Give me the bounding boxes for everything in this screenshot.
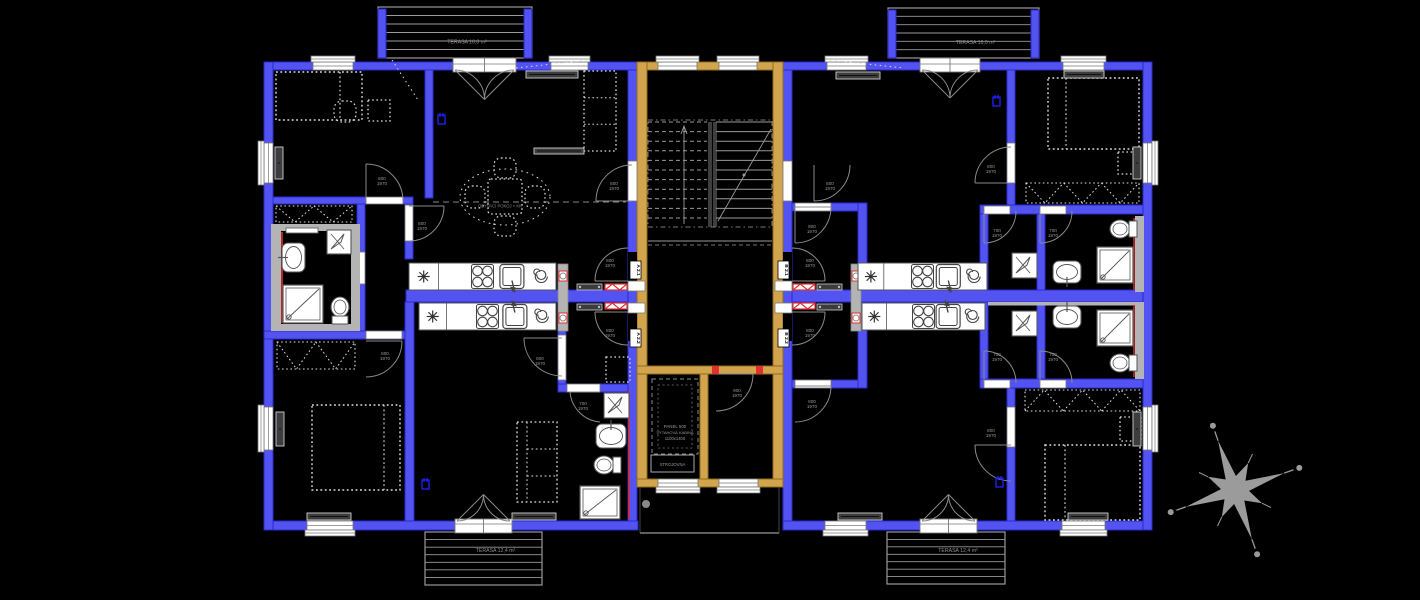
svg-text:B 2.1: B 2.1 xyxy=(783,264,789,276)
svg-text:TERASA 16,0 m²: TERASA 16,0 m² xyxy=(447,40,487,46)
svg-text:TERASA 12,4 m²: TERASA 12,4 m² xyxy=(938,548,978,554)
svg-text:A 2.1: A 2.1 xyxy=(635,264,641,276)
svg-text:VÝTAHOVÁ KABINA: VÝTAHOVÁ KABINA xyxy=(656,430,694,435)
svg-text:TERASA 16,0 m²: TERASA 16,0 m² xyxy=(956,40,996,46)
svg-text:1100x1400: 1100x1400 xyxy=(665,436,686,441)
svg-text:STROJOVNA: STROJOVNA xyxy=(660,462,686,467)
svg-text:A 2.2: A 2.2 xyxy=(635,332,641,344)
svg-text:PANEL 500: PANEL 500 xyxy=(664,424,687,429)
svg-text:OBÝVACÍ POKOJ + KK: OBÝVACÍ POKOJ + KK xyxy=(478,204,522,209)
svg-text:TERASA 12,4 m²: TERASA 12,4 m² xyxy=(476,548,516,554)
svg-text:B 2.2: B 2.2 xyxy=(783,332,789,344)
